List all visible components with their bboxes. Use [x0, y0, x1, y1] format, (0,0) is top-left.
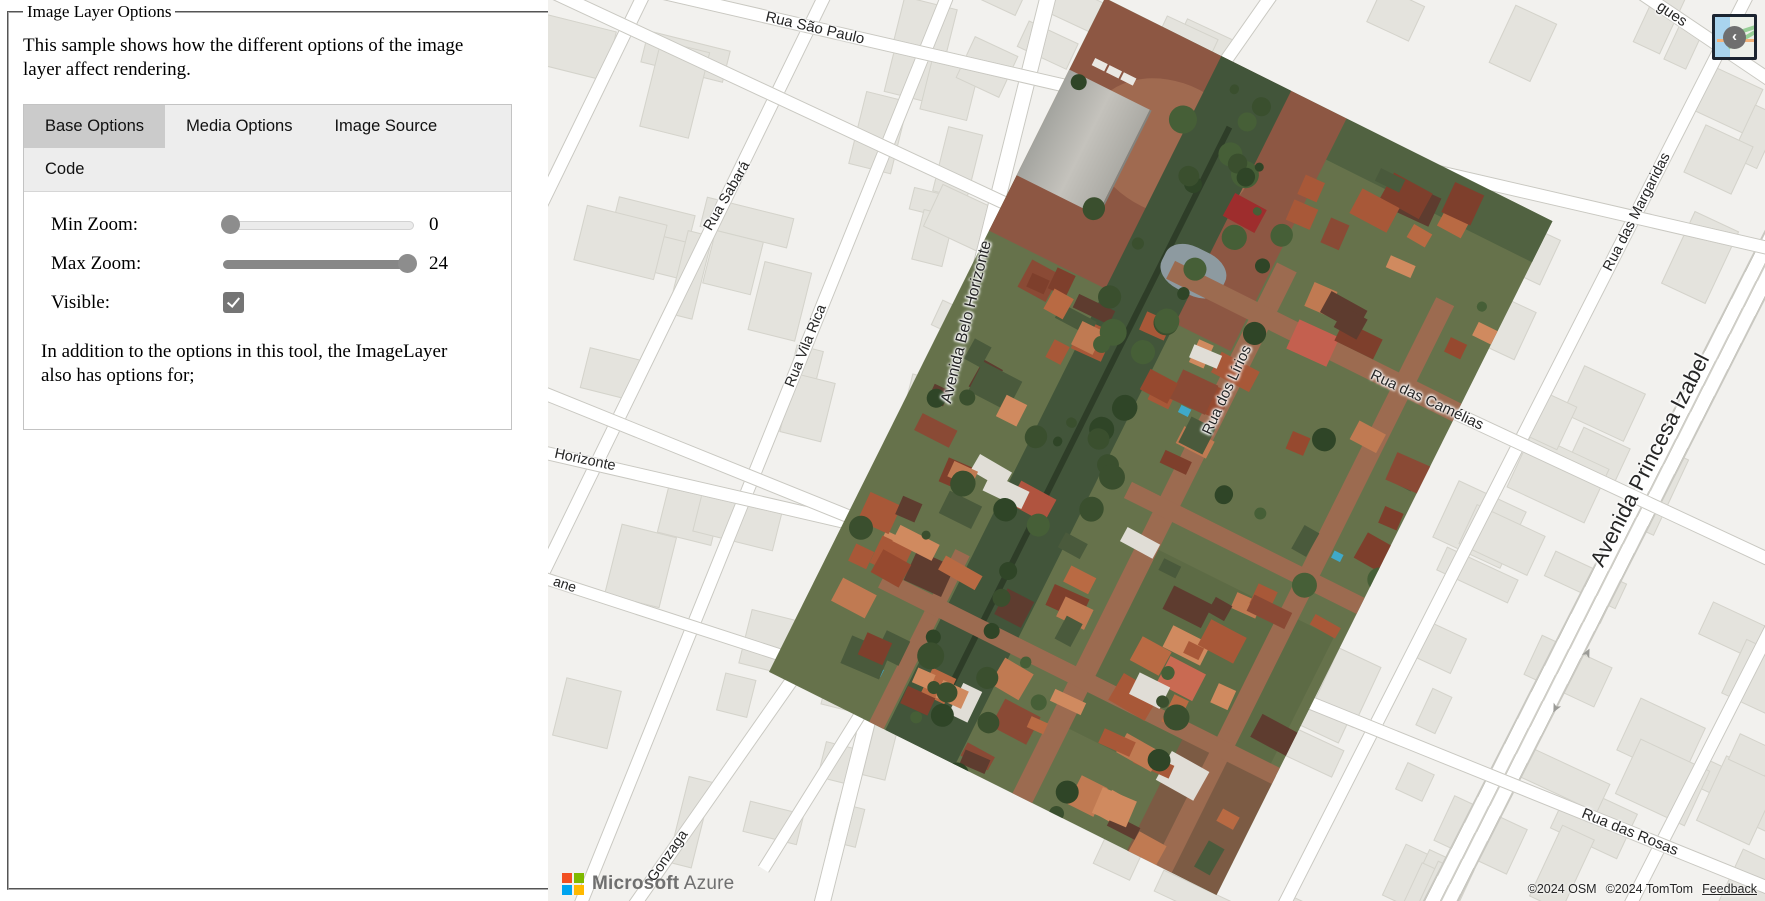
tomtom-copyright: ©2024 TomTom: [1606, 882, 1694, 896]
max-zoom-label: Max Zoom:: [51, 253, 223, 275]
microsoft-logo-icon: [562, 873, 584, 895]
map-attribution: ©2024 OSM©2024 TomTomFeedback: [1519, 882, 1757, 896]
visible-checkbox[interactable]: [223, 292, 244, 313]
aerial-feature: [1386, 256, 1416, 279]
aerial-feature: [1475, 300, 1488, 313]
building: [1396, 762, 1436, 802]
street-label: ane: [551, 573, 578, 595]
building: [552, 677, 622, 749]
min-zoom-label: Min Zoom:: [51, 214, 223, 236]
aerial-feature: [1331, 550, 1344, 562]
aerial-feature: [1385, 452, 1431, 494]
options-toolbox: Base OptionsMedia OptionsImage SourceCod…: [23, 104, 512, 430]
visible-label: Visible:: [51, 292, 223, 314]
aerial-feature: [831, 578, 877, 619]
osm-copyright: ©2024 OSM: [1528, 882, 1597, 896]
map-style-picker-button[interactable]: ‹: [1712, 14, 1757, 60]
max-zoom-value: 24: [429, 253, 448, 275]
panel-legend: Image Layer Options: [23, 2, 175, 22]
aerial-feature: [1378, 507, 1404, 532]
azure-maps-logo: Microsoft Azure: [562, 873, 734, 895]
aerial-feature: [914, 413, 957, 448]
aerial-feature: [1444, 337, 1467, 359]
building: [1562, 365, 1646, 442]
image-layer-options-sample: Image Layer Options This sample shows ho…: [0, 0, 1765, 901]
building: [1366, 0, 1425, 42]
building: [716, 672, 756, 717]
tab-base-options[interactable]: Base Options: [24, 105, 165, 148]
aerial-feature: [1211, 482, 1236, 507]
min-zoom-value: 0: [429, 214, 439, 236]
building: [971, 0, 1027, 16]
aerial-feature: [1308, 424, 1339, 455]
aerial-feature: [1047, 803, 1067, 823]
additional-options-note: In addition to the options in this tool,…: [41, 340, 459, 389]
chevron-left-icon: ‹: [1723, 26, 1746, 49]
slider-track[interactable]: [223, 260, 414, 269]
aerial-feature: [1320, 217, 1349, 250]
aerial-feature: [895, 496, 923, 523]
aerial-feature: [1354, 532, 1404, 578]
options-panel: Image Layer Options This sample shows ho…: [7, 2, 556, 890]
logo-text: Microsoft Azure: [592, 873, 734, 895]
min-zoom-slider[interactable]: [223, 215, 414, 234]
sample-description: This sample shows how the different opti…: [23, 34, 471, 83]
aerial-feature: [1285, 430, 1309, 455]
max-zoom-row: Max Zoom: 24: [51, 253, 497, 275]
slider-thumb[interactable]: [398, 254, 417, 273]
feedback-link[interactable]: Feedback: [1702, 882, 1757, 896]
aerial-feature: [1407, 224, 1433, 248]
min-zoom-row: Min Zoom: 0: [51, 214, 497, 236]
aerial-feature: [1252, 505, 1269, 522]
aerial-feature: [1058, 533, 1089, 560]
visible-row: Visible:: [51, 292, 497, 314]
tab-code[interactable]: Code: [24, 148, 105, 191]
aerial-feature: [1029, 692, 1050, 713]
tab-image-source[interactable]: Image Source: [313, 105, 458, 148]
aerial-feature: [1364, 564, 1396, 596]
base-options-tab-panel: Min Zoom: 0 Max Zoom: 24 Vis: [24, 192, 511, 429]
slider-thumb[interactable]: [221, 215, 240, 234]
map-canvas[interactable]: ➤➤ Rua São PauloRua SabaráRua Vila RicaA…: [548, 0, 1765, 901]
tab-media-options[interactable]: Media Options: [165, 105, 313, 148]
building: [1415, 687, 1453, 734]
aerial-feature: [1045, 339, 1070, 365]
slider-track[interactable]: [223, 221, 414, 230]
max-zoom-slider[interactable]: [223, 254, 414, 273]
tab-bar: Base OptionsMedia OptionsImage SourceCod…: [24, 105, 511, 192]
building: [1488, 4, 1557, 81]
